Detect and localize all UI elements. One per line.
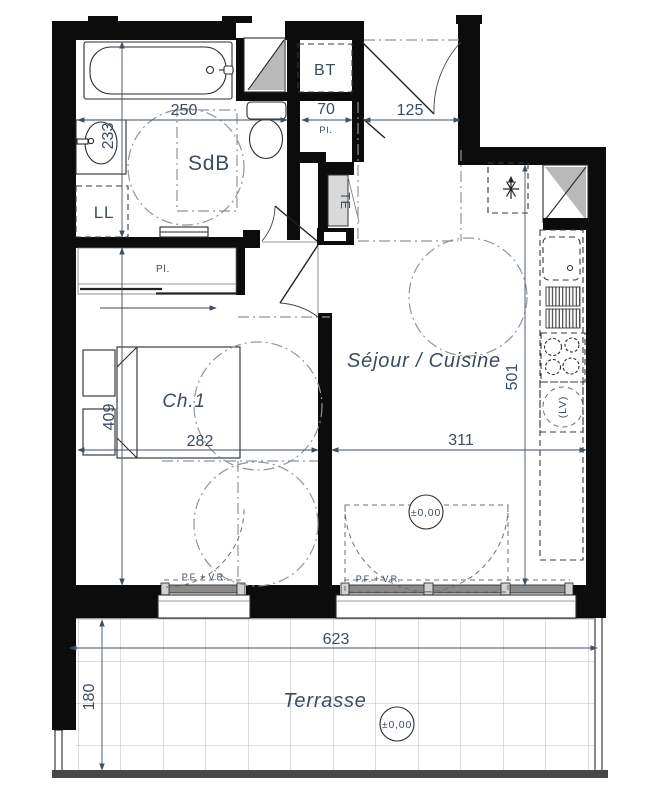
wall-te-bottom-inner bbox=[324, 232, 346, 241]
wall-step-vertical bbox=[458, 21, 480, 150]
level-marker-sejour: ±0,00 bbox=[409, 495, 443, 529]
kitchen-cooktop bbox=[541, 333, 585, 382]
wall-hall-closet-east bbox=[236, 247, 245, 295]
kitchen-sink-drain bbox=[568, 266, 573, 271]
wall-bottom-mid bbox=[246, 585, 340, 618]
wall-bottom-right bbox=[573, 585, 606, 618]
wall-window-stub bbox=[236, 38, 244, 96]
dishwasher-label: (LV) bbox=[557, 396, 569, 418]
window-right-stub bbox=[543, 218, 588, 230]
window-mullion-2 bbox=[501, 583, 510, 595]
dim-233: 233 bbox=[100, 123, 117, 150]
dim-70: 70 bbox=[317, 101, 335, 118]
terrace-front-edge bbox=[52, 770, 608, 778]
label-pl-small: Pl. bbox=[319, 125, 333, 136]
label-terrasse: Terrasse bbox=[283, 690, 366, 712]
label-sejour-cuisine: Séjour / Cuisine bbox=[347, 350, 501, 372]
washbasin-tap-icon bbox=[77, 139, 88, 144]
dim-282: 282 bbox=[187, 433, 214, 450]
dim-125: 125 bbox=[397, 102, 424, 119]
ch1-door bbox=[280, 245, 318, 317]
wall-closet70-bottom bbox=[290, 152, 326, 163]
entry-door bbox=[362, 42, 461, 138]
dim-623: 623 bbox=[323, 631, 350, 648]
wall-te-top bbox=[324, 162, 354, 175]
wall-under-window bbox=[236, 92, 364, 101]
floor-plan-page: (LV) bbox=[0, 0, 672, 800]
bathtub bbox=[84, 42, 233, 99]
closet-hall bbox=[78, 248, 238, 308]
window-ch1 bbox=[158, 580, 250, 618]
window-mullion-1 bbox=[424, 583, 433, 595]
level-sejour-value: ±0,00 bbox=[411, 507, 441, 519]
dim-180: 180 bbox=[81, 684, 98, 711]
label-ch1: Ch.1 bbox=[162, 391, 205, 412]
dim-311: 311 bbox=[448, 432, 474, 449]
toilet bbox=[247, 102, 286, 159]
dishwasher: (LV) bbox=[540, 382, 583, 432]
kitchen-counter: (LV) bbox=[540, 230, 585, 560]
wall-bottom-left bbox=[52, 585, 164, 618]
turning-circle-ch1-b bbox=[194, 462, 318, 586]
label-pfvr-ch1: P.F. + V.R. bbox=[182, 572, 227, 582]
kitchen-drainer bbox=[546, 287, 580, 328]
wall-sdb-south bbox=[76, 237, 246, 248]
dim-409: 409 bbox=[101, 404, 118, 431]
dim-501: 501 bbox=[504, 364, 521, 391]
entry-tech-box bbox=[488, 163, 528, 213]
wall-sdb-door-jamb bbox=[243, 230, 260, 248]
label-pl-hall: Pl. bbox=[156, 264, 170, 275]
window-top bbox=[244, 38, 285, 92]
nightstand-1 bbox=[83, 350, 115, 396]
terrace-railing-left bbox=[54, 730, 63, 770]
level-marker-terrace: ±0,00 bbox=[380, 707, 414, 741]
wall-right bbox=[586, 147, 606, 618]
wall-sdb-east bbox=[287, 40, 300, 240]
turning-circle-sejour bbox=[409, 238, 527, 356]
radiator bbox=[160, 227, 208, 237]
light-point-symbol bbox=[503, 176, 519, 199]
label-pfvr-sejour: P.F. + V.R. bbox=[356, 574, 401, 584]
floor-plan-drawing: (LV) bbox=[0, 0, 672, 800]
dim-250: 250 bbox=[171, 102, 198, 119]
wall-left bbox=[52, 21, 76, 730]
label-te: TE bbox=[338, 192, 352, 210]
wall-top-left bbox=[52, 21, 236, 40]
wall-step-horizontal bbox=[458, 147, 606, 165]
label-sdb: SdB bbox=[188, 152, 230, 175]
wall-partition-ch1-sejour bbox=[318, 313, 332, 585]
terrace-railing-right bbox=[595, 618, 602, 770]
kitchen-sink bbox=[543, 237, 580, 280]
level-terrace-value: ±0,00 bbox=[382, 719, 412, 731]
label-bt: BT bbox=[314, 62, 336, 79]
bathtub-tap-icon bbox=[224, 66, 233, 74]
window-right bbox=[543, 165, 588, 230]
label-ll: LL bbox=[94, 203, 115, 222]
